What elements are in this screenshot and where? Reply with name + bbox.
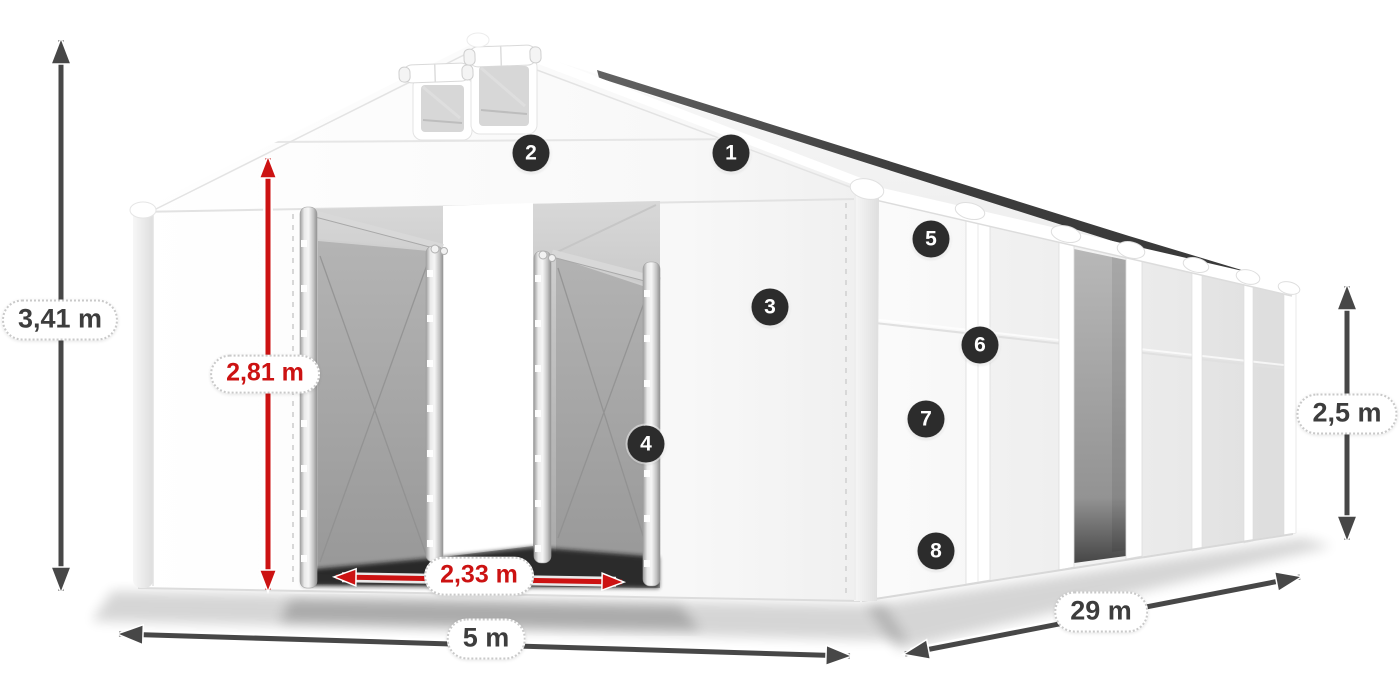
entrance-post-4	[643, 262, 660, 586]
feature-badge-1: 1	[713, 135, 750, 172]
gable-window-left	[413, 77, 472, 140]
dimension-label-entrance-width: 2,33 m	[424, 557, 534, 596]
entrance-post-3	[534, 251, 551, 563]
tent-illustration	[0, 0, 1400, 700]
window-roll-right	[464, 45, 542, 68]
dimension-label-width: 5 m	[447, 618, 526, 659]
gable-window-right	[471, 58, 537, 134]
feature-badge-5: 5	[913, 221, 950, 258]
tent-dimension-diagram: 3,41 m 2,81 m 2,33 m 5 m 29 m 2,5 m 1234…	[0, 0, 1400, 700]
dimension-label-entrance-height: 2,81 m	[210, 355, 320, 394]
sliding-gate-left-panel	[318, 240, 429, 578]
side-entrance-opening	[1074, 249, 1126, 563]
feature-badge-7: 7	[908, 401, 945, 438]
sliding-gate-right-panel	[556, 256, 646, 560]
feature-badge-4: 4	[628, 426, 665, 463]
dimension-label-length: 29 m	[1054, 591, 1148, 632]
feature-badge-8: 8	[918, 533, 955, 570]
window-roll-left	[399, 63, 474, 84]
entrance-post-1	[300, 207, 317, 588]
front-entrance-opening	[300, 201, 660, 588]
entrance-post-2	[426, 246, 443, 562]
roof-peak-cap	[467, 33, 489, 47]
dimension-label-total-height: 3,41 m	[2, 299, 118, 340]
dimension-label-side-height: 2,5 m	[1296, 393, 1397, 434]
feature-badge-3: 3	[752, 289, 789, 326]
front-left-corner-pillar	[130, 202, 156, 588]
feature-badge-6: 6	[962, 327, 999, 364]
open-gap	[443, 203, 533, 557]
feature-badge-2: 2	[513, 135, 550, 172]
